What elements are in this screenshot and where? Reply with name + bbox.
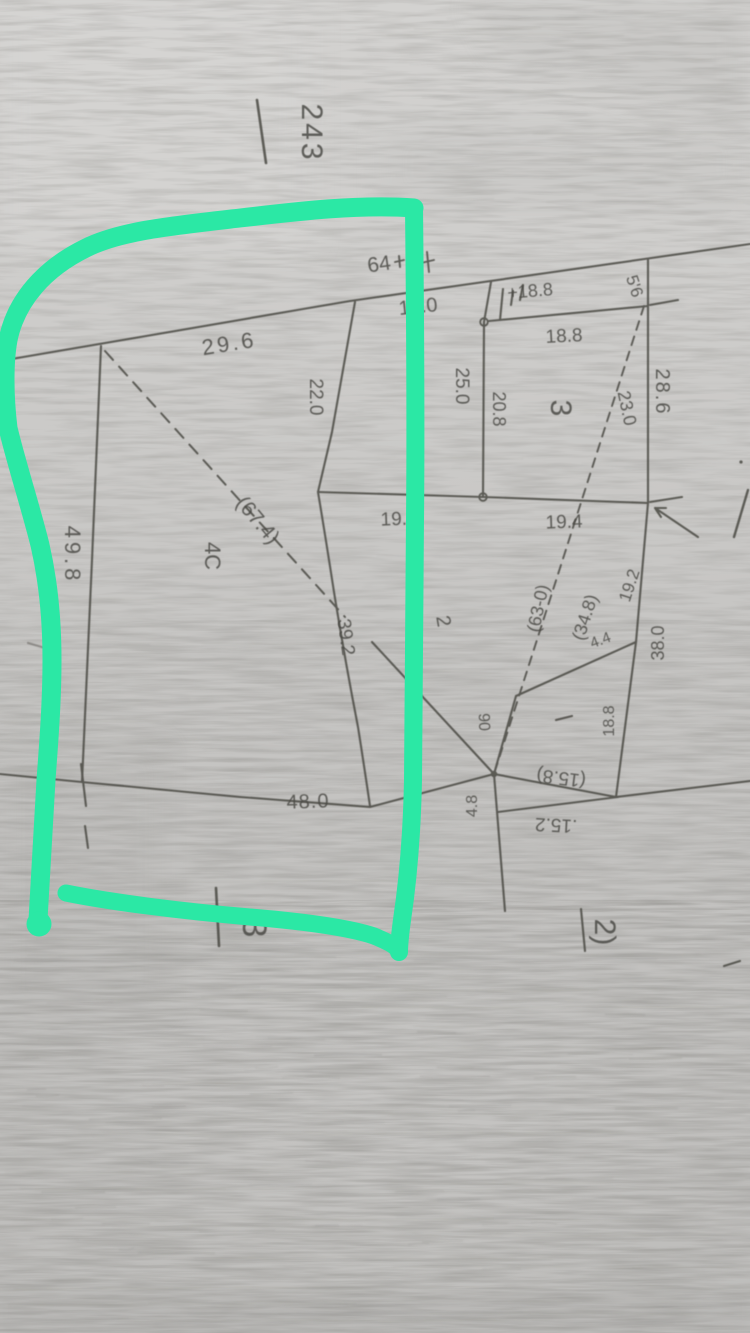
svg-text:19.4: 19.4: [545, 511, 583, 533]
svg-text:4.8: 4.8: [464, 795, 481, 817]
svg-text:38.0: 38.0: [648, 625, 668, 660]
svg-text:.15.2: .15.2: [534, 813, 577, 836]
svg-text:22.0: 22.0: [305, 379, 326, 416]
svg-text:49.8: 49.8: [60, 526, 85, 585]
svg-text:4C: 4C: [200, 542, 225, 570]
svg-text:64: 64: [366, 251, 393, 277]
svg-text:28.6: 28.6: [651, 369, 673, 416]
svg-text:243: 243: [295, 103, 328, 162]
svg-text:2): 2): [588, 919, 621, 946]
svg-text:25.0: 25.0: [451, 368, 472, 405]
svg-text:+18.8: +18.8: [507, 279, 554, 303]
svg-text:18.8: 18.8: [601, 705, 618, 736]
svg-text:3: 3: [544, 400, 577, 417]
svg-text:90: 90: [475, 713, 493, 731]
svg-text:48.0: 48.0: [286, 790, 330, 813]
svg-text:20.8: 20.8: [489, 391, 509, 426]
svg-text:18.8: 18.8: [545, 325, 583, 348]
